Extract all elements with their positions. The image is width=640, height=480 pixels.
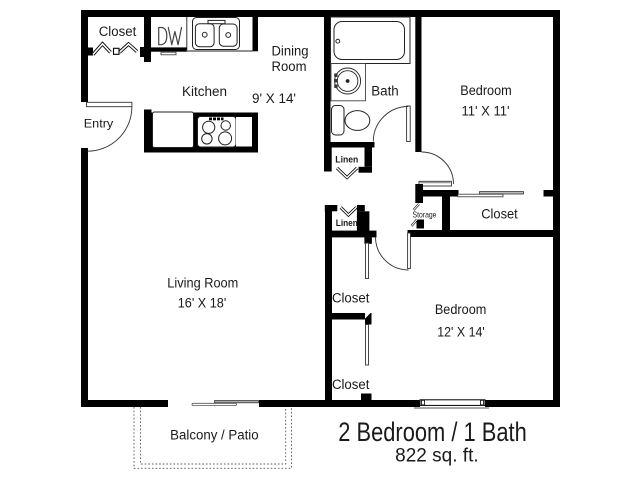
svg-text:11' X 11': 11' X 11': [462, 104, 510, 119]
svg-text:16' X 18': 16' X 18': [178, 296, 227, 311]
svg-text:Balcony / Patio: Balcony / Patio: [170, 428, 259, 443]
svg-text:Linen: Linen: [336, 218, 358, 229]
svg-text:822 sq. ft.: 822 sq. ft.: [395, 445, 479, 467]
svg-text:Dining: Dining: [272, 44, 309, 59]
svg-text:Bedroom: Bedroom: [460, 82, 512, 98]
svg-text:2 Bedroom / 1 Bath: 2 Bedroom / 1 Bath: [338, 417, 527, 447]
svg-text:Room: Room: [272, 59, 307, 74]
svg-text:Closet: Closet: [481, 206, 518, 222]
svg-text:Storage: Storage: [413, 210, 437, 220]
svg-text:Linen: Linen: [335, 155, 358, 166]
svg-text:Bedroom: Bedroom: [435, 301, 487, 317]
svg-text:9' X 14': 9' X 14': [252, 91, 296, 106]
svg-text:12' X 14': 12' X 14': [437, 325, 485, 340]
svg-text:Closet: Closet: [99, 24, 137, 39]
svg-text:Bath: Bath: [371, 84, 399, 99]
svg-text:Closet: Closet: [332, 377, 370, 392]
svg-text:Entry: Entry: [84, 117, 114, 131]
svg-text:Kitchen: Kitchen: [182, 84, 227, 99]
svg-text:Living Room: Living Room: [167, 276, 238, 291]
svg-text:Closet: Closet: [332, 291, 370, 306]
